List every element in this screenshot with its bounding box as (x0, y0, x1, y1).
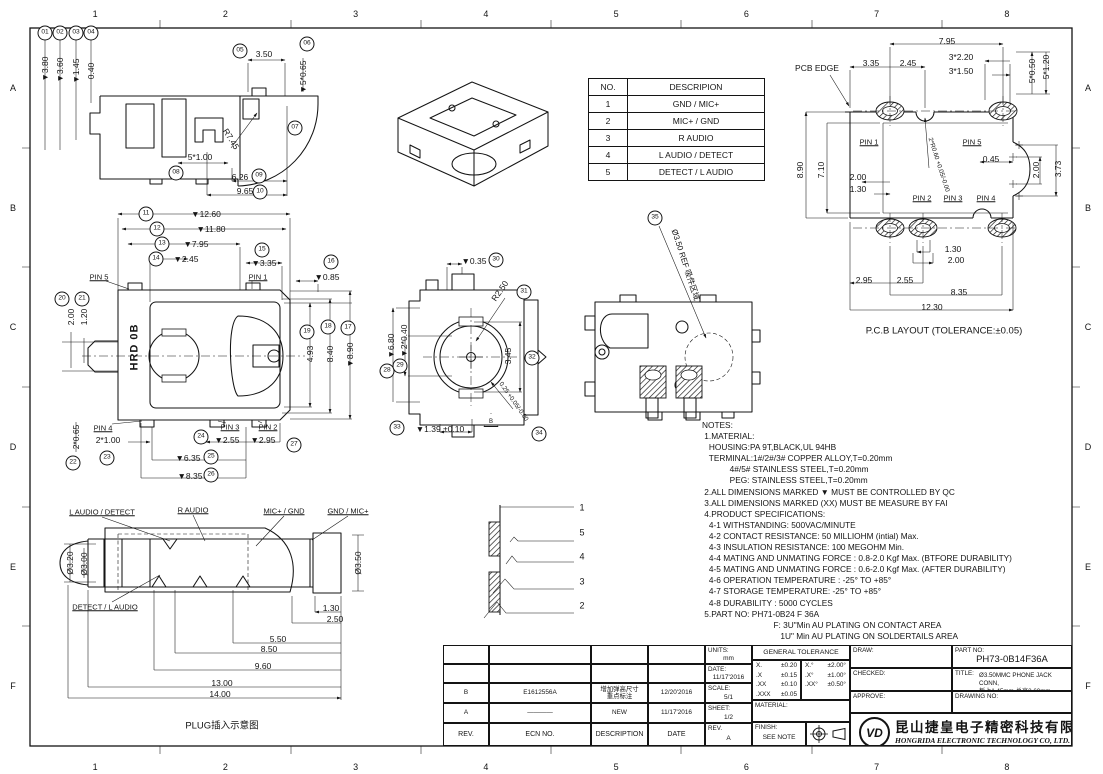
approve-label: APPROVE: (853, 693, 885, 700)
scale-value: 5/1 (706, 694, 751, 701)
tolerance-row: .XX±0.10 (753, 680, 800, 690)
drawing-sheet: .o{stroke:#141414;stroke-width:1.05;fill… (0, 0, 1103, 774)
tolerance-row: .X±0.15 (753, 671, 800, 681)
note-line: 4-8 DURABILITY : 5000 CYCLES (702, 598, 1094, 609)
date-value: 11/17'2016 (706, 674, 751, 681)
signal-table-cell: 4 (589, 147, 628, 164)
title-label: TITLE: (955, 670, 974, 677)
sheet-label: SHEET: (708, 705, 730, 712)
tolerance-row: .XX°±0.50° (802, 680, 849, 690)
note-line: 1.MATERIAL: (702, 431, 1094, 442)
table-row: 3R AUDIO (589, 130, 765, 147)
note-line: 3.ALL DIMENSIONS MARKED (XX) MUST BE MEA… (702, 498, 1094, 509)
note-line: 4-5 MATING AND UNMATING FORCE : 0.6-2.0 … (702, 564, 1094, 575)
table-row: 4L AUDIO / DETECT (589, 147, 765, 164)
projection-symbol-icon (807, 723, 849, 745)
table-row: 1GND / MIC+ (589, 96, 765, 113)
view-isometric (398, 82, 548, 186)
note-line: 4-6 OPERATION TEMPERATURE : -25° TO +85° (702, 575, 1094, 586)
drawing-frame (22, 20, 1080, 754)
signal-table-cell: 5 (589, 164, 628, 181)
revision-cell: 增加弹高尺寸 重点标注 (591, 683, 648, 703)
rev-col-header: REV. (444, 731, 488, 738)
desc-col-header: DESCRIPTION (592, 731, 647, 738)
view-pcb-layout (806, 44, 1058, 310)
units-label: UNITS: (708, 647, 729, 654)
date-col-header: DATE (649, 731, 704, 738)
note-line: HOUSING:PA 9T,BLACK,UL 94HB (702, 442, 1094, 453)
note-line: 4-3 INSULATION RESISTANCE: 100 MEGOHM Mi… (702, 542, 1094, 553)
rev-label: REV. (708, 725, 722, 732)
revision-cell: NEW (591, 703, 648, 723)
tolerance-linear: X.±0.20.X±0.15.XX±0.10.XXX±0.05 (753, 661, 800, 699)
company-name-en: HONGRIDA ELECTRONIC TECHNOLOGY CO, LTD. (895, 736, 1072, 745)
tolerance-row: X.±0.20 (753, 661, 800, 671)
checked-label: CHECKED: (853, 670, 886, 677)
tolerance-angular: X.°±2.00°.X°±1.00°.XX°±0.50° (802, 661, 849, 690)
note-line: TERMINAL:1#/2#/3# COPPER ALLOY,T=0.20mm (702, 453, 1094, 464)
drawingno-label: DRAWING NO: (955, 693, 998, 700)
signal-table-cell: 1 (589, 96, 628, 113)
signal-table: NO.DESCRIPION 1GND / MIC+2MIC+ / GND3R A… (588, 78, 765, 181)
revision-cell: E1612556A (489, 683, 591, 703)
notes-block: NOTES: 1.MATERIAL: HOUSING:PA 9T,BLACK,U… (702, 420, 1094, 642)
tolerance-row: .XXX±0.05 (753, 690, 800, 700)
note-line: NOTES: (702, 420, 1094, 431)
schematic (484, 505, 574, 618)
note-line: 4-7 STORAGE TEMPERATURE: -25° TO +85° (702, 586, 1094, 597)
note-line: 4-2 CONTACT RESISTANCE: 50 MILLIOHM (int… (702, 531, 1094, 542)
signal-table-cell: L AUDIO / DETECT (628, 147, 765, 164)
tolerance-row: .X°±1.00° (802, 671, 849, 681)
signal-table-cell: R AUDIO (628, 130, 765, 147)
part-number: PH73-0B14F36A (953, 654, 1071, 665)
revision-cell: B (443, 683, 489, 703)
signal-table-cell: DETECT / L AUDIO (628, 164, 765, 181)
signal-table-cell: GND / MIC+ (628, 96, 765, 113)
table-row: 2MIC+ / GND (589, 113, 765, 130)
signal-table-body: 1GND / MIC+2MIC+ / GND3R AUDIO4L AUDIO /… (589, 96, 765, 181)
note-line: 4-4 MATING AND UNMATING FORCE : 0.8-2.0 … (702, 553, 1094, 564)
rev-value: A (706, 735, 751, 742)
ecn-col-header: ECN NO. (490, 731, 590, 738)
signal-table-cell: 2 (589, 113, 628, 130)
view-plug (60, 515, 364, 700)
signal-table-header: NO.DESCRIPION (589, 79, 765, 96)
note-line: 1U" Min AU PLATING ON SOLDERTAILS AREA (702, 631, 1094, 642)
revision-cell: 12/20'2016 (648, 683, 705, 703)
sheet-value: 1/2 (706, 714, 751, 721)
company-logo: VD (859, 717, 890, 746)
partno-label: PART NO: (955, 647, 984, 654)
company-name-cn: 昆山捷皇电子精密科技有限公司 (895, 716, 1072, 736)
signal-table-header-cell: DESCRIPION (628, 79, 765, 96)
scale-label: SCALE: (708, 685, 730, 692)
view-bottom (585, 226, 760, 420)
drawing-title-line1: Ø3.50MMC PHONE JACK CONN, (979, 672, 1071, 688)
date-label: DATE: (708, 666, 726, 673)
revision-cell: 11/17'2016 (648, 703, 705, 723)
note-line: 4.PRODUCT SPECIFICATIONS: (702, 509, 1094, 520)
note-line: 5.PART NO: PH71-0B24 F 36A (702, 609, 1094, 620)
tolerance-row: X.°±2.00° (802, 661, 849, 671)
tolerance-title: GENERAL TOLERANCE (753, 649, 849, 656)
note-line: PEG: STAINLESS STEEL,T=0.20mm (702, 475, 1094, 486)
view-front (393, 264, 546, 437)
note-line: F: 3U"Min AU PLATING ON CONTACT AREA (702, 620, 1094, 631)
finish-value: SEE NOTE (753, 734, 805, 741)
title-block: BE1612556A增加弹高尺寸 重点标注12/20'2016A————NEW1… (443, 645, 1072, 746)
table-row: 5DETECT / L AUDIO (589, 164, 765, 181)
signal-table-cell: MIC+ / GND (628, 113, 765, 130)
finish-label: FINISH: (755, 724, 777, 731)
signal-table-cell: 3 (589, 130, 628, 147)
material-label: MATERIAL: (755, 702, 788, 709)
note-line: 4#/5# STAINLESS STEEL,T=0.20mm (702, 464, 1094, 475)
note-line: 2.ALL DIMENSIONS MARKED ▼ MUST BE CONTRO… (702, 487, 1094, 498)
revision-cell: A (443, 703, 489, 723)
view-side-section (45, 40, 318, 196)
view-top (62, 214, 352, 478)
draw-label: DRAW: (853, 647, 874, 654)
units-value: mm (706, 655, 751, 662)
revision-cell: ———— (489, 703, 591, 723)
note-line: 4-1 WITHSTANDING: 500VAC/MINUTE (702, 520, 1094, 531)
signal-table-header-cell: NO. (589, 79, 628, 96)
